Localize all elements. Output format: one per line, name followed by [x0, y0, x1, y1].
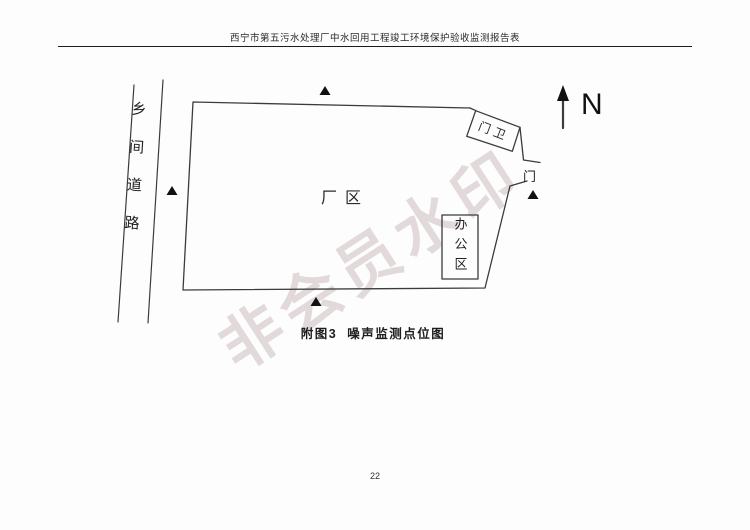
north-arrow-icon [557, 85, 569, 101]
gate-label: 门 [523, 166, 536, 185]
figure-caption: 附图3 噪声监测点位图 [0, 323, 746, 342]
road-line-right [148, 80, 163, 323]
monitoring-point-west [167, 186, 178, 195]
site-plan-diagram [0, 0, 750, 530]
office-area-label: 办公区 [451, 217, 470, 277]
plant-boundary-connector [470, 108, 476, 111]
gate-side-line [520, 127, 540, 162]
page-number: 22 [0, 471, 750, 481]
monitoring-point-north [320, 86, 331, 95]
north-label: N [581, 88, 603, 122]
plant-area-label: 厂区 [321, 184, 369, 208]
monitoring-point-south [311, 297, 322, 306]
monitoring-point-east [528, 190, 539, 199]
